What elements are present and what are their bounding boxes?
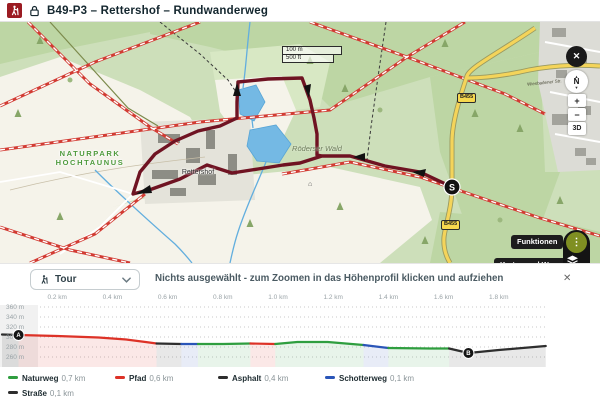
- strasse-swatch: [8, 391, 18, 394]
- 3d-mode-button[interactable]: 3D: [568, 122, 586, 135]
- svg-text:280 m: 280 m: [6, 344, 24, 351]
- svg-text:260 m: 260 m: [6, 354, 24, 361]
- svg-text:1.0 km: 1.0 km: [268, 294, 288, 301]
- scale-bar: 100 m 500 ft: [282, 46, 342, 63]
- svg-text:360 m: 360 m: [6, 304, 24, 311]
- map-close-button[interactable]: ✕: [566, 46, 587, 67]
- schotterweg-swatch: [325, 376, 335, 379]
- route-planner-app: B49-P3 – Rettershof – Rundwanderweg: [0, 0, 600, 400]
- svg-text:1.8 km: 1.8 km: [489, 294, 509, 301]
- panel-close-icon[interactable]: ✕: [563, 264, 571, 294]
- svg-text:1.4 km: 1.4 km: [379, 294, 399, 301]
- more-options-button[interactable]: ⋮: [566, 232, 587, 253]
- map-canvas[interactable]: ⌂ S NATURPARKHOCHTAUNUS Rettershof Röder…: [0, 22, 600, 263]
- scale-metric: 100 m: [282, 46, 342, 55]
- hut-icon: ⌂: [308, 181, 312, 188]
- svg-text:1.2 km: 1.2 km: [323, 294, 343, 301]
- route-endpoint-marker-a: A: [13, 330, 24, 341]
- scale-imperial: 500 ft: [282, 55, 334, 63]
- compass-control[interactable]: ▲ N ▼: [565, 70, 588, 93]
- start-marker[interactable]: S: [444, 179, 460, 195]
- svg-text:1.6 km: 1.6 km: [434, 294, 454, 301]
- chevron-down-icon: [122, 277, 131, 283]
- elevation-panel: Tour Nichts ausgewählt - zum Zoomen in d…: [0, 263, 600, 400]
- lock-icon: [29, 5, 40, 17]
- svg-text:0.2 km: 0.2 km: [47, 294, 67, 301]
- profile-hint-message: Nichts ausgewählt - zum Zoomen in das Hö…: [155, 264, 503, 294]
- svg-text:B: B: [466, 351, 471, 357]
- svg-text:0.4 km: 0.4 km: [103, 294, 123, 301]
- legend-item-pfad: Pfad0,6 km: [115, 374, 173, 383]
- hiker-icon: [39, 274, 49, 285]
- tour-select-dropdown[interactable]: Tour: [30, 269, 140, 290]
- compass-down-arrow: ▼: [575, 86, 579, 89]
- naturweg-swatch: [8, 376, 18, 379]
- zoom-out-button[interactable]: −: [568, 108, 586, 121]
- layers-button[interactable]: [566, 254, 587, 263]
- zoom-in-button[interactable]: +: [568, 94, 586, 107]
- svg-text:A: A: [16, 333, 21, 339]
- svg-text:340 m: 340 m: [6, 314, 24, 321]
- legend-item-naturweg: Naturweg0,7 km: [8, 374, 85, 383]
- pfad-swatch: [115, 376, 125, 379]
- legend-item-strasse: Straße0,1 km: [8, 389, 74, 398]
- svg-text:0.8 km: 0.8 km: [213, 294, 233, 301]
- elevation-profile-chart[interactable]: 0.2 km0.4 km0.6 km0.8 km1.0 km1.2 km1.4 …: [0, 291, 600, 371]
- header-bar: B49-P3 – Rettershof – Rundwanderweg: [0, 0, 600, 22]
- page-title: B49-P3 – Rettershof – Rundwanderweg: [47, 5, 268, 17]
- tour-select-label: Tour: [55, 274, 116, 285]
- asphalt-swatch: [218, 376, 228, 379]
- hiking-activity-icon: [7, 3, 22, 18]
- legend-item-schotterweg: Schotterweg0,1 km: [325, 374, 414, 383]
- route-endpoint-marker-b: B: [463, 348, 474, 359]
- legend-item-asphalt: Asphalt0,4 km: [218, 374, 288, 383]
- svg-text:0.6 km: 0.6 km: [158, 294, 178, 301]
- layers-icon: [566, 254, 579, 263]
- svg-text:S: S: [449, 183, 455, 193]
- map-tools-pill: ⋮: [563, 230, 590, 263]
- funktionen-button[interactable]: Funktionen: [511, 235, 563, 249]
